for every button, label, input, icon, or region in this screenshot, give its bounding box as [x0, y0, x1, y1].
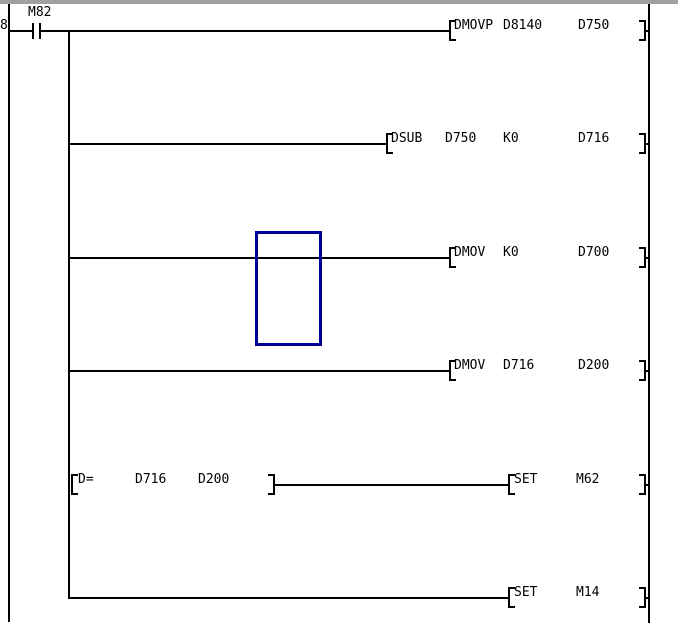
operand[interactable]: D716 — [503, 359, 534, 373]
operand[interactable]: M62 — [576, 473, 599, 487]
contact-bar-left — [32, 23, 34, 39]
operand[interactable]: D8140 — [503, 19, 542, 33]
wire — [645, 484, 650, 486]
wire — [69, 370, 449, 372]
operand[interactable]: D700 — [578, 246, 609, 260]
instruction-set[interactable]: SET — [514, 586, 537, 600]
left-power-rail — [8, 4, 10, 622]
window-top-border — [0, 0, 678, 4]
compare-operand[interactable]: D716 — [135, 473, 166, 487]
instruction-dmov[interactable]: DMOV — [454, 359, 485, 373]
wire — [645, 370, 650, 372]
wire — [645, 30, 650, 32]
instruction-dmovp[interactable]: DMOVP — [454, 19, 493, 33]
instruction-dsub[interactable]: DSUB — [391, 132, 422, 146]
operand[interactable]: D200 — [578, 359, 609, 373]
instruction-dmov[interactable]: DMOV — [454, 246, 485, 260]
step-number: 8 — [0, 19, 8, 33]
right-power-rail — [648, 4, 650, 623]
selection-cursor[interactable] — [255, 231, 322, 346]
compare-bracket-open — [71, 474, 78, 495]
wire — [645, 143, 650, 145]
wire — [41, 30, 449, 32]
compare-operand[interactable]: D200 — [198, 473, 229, 487]
operand[interactable]: K0 — [503, 246, 519, 260]
operand[interactable]: D750 — [445, 132, 476, 146]
operand[interactable]: D750 — [578, 19, 609, 33]
operand[interactable]: K0 — [503, 132, 519, 146]
compare-instruction[interactable]: D= — [78, 473, 94, 487]
branch-line — [68, 30, 70, 599]
ladder-editor: 8 M82 DMOVP D8140 D750 DSUB D750 K0 D716… — [0, 0, 678, 627]
wire — [645, 257, 650, 259]
operand[interactable]: M14 — [576, 586, 599, 600]
wire — [274, 484, 508, 486]
operand[interactable]: D716 — [578, 132, 609, 146]
wire — [9, 30, 32, 32]
contact-label: M82 — [28, 6, 51, 20]
wire — [645, 597, 650, 599]
wire — [69, 597, 508, 599]
wire — [69, 143, 386, 145]
instruction-set[interactable]: SET — [514, 473, 537, 487]
